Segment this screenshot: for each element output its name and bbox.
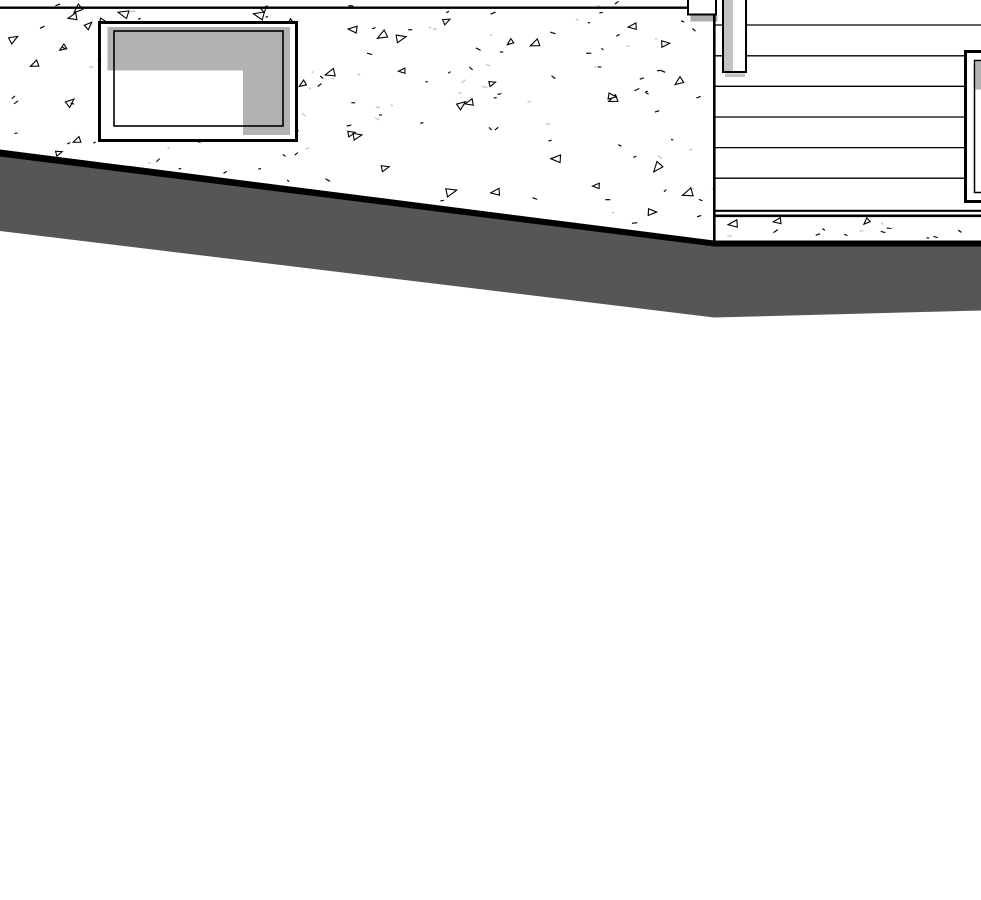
stipple-dash [266,16,268,17]
stipple-dash [131,11,136,12]
wall-joint-line [0,7,688,9]
stipple-dash [500,52,503,53]
stipple-dash [727,236,731,237]
guardrail-post[interactable] [723,0,746,77]
post-shadow [725,74,745,78]
stipple-dash [594,67,596,68]
right-window-glass [976,62,981,90]
stipple-dash [860,231,864,232]
stipple-dash [599,12,602,13]
stipple-dash [632,223,637,224]
stipple-dash [179,168,182,169]
elevation-canvas[interactable] [0,0,981,900]
stipple-dash [645,91,647,92]
stipple-dash [420,123,423,124]
wall-corner-line [713,14,716,244]
basement-window[interactable] [100,23,297,141]
post-shade-strip [724,0,733,71]
stipple-dash [89,67,93,68]
beam-end-face [688,0,716,15]
elevation-drawing [0,0,981,900]
right-window[interactable] [966,52,981,202]
stipple-dash [258,169,261,170]
stipple-dash [440,200,444,201]
